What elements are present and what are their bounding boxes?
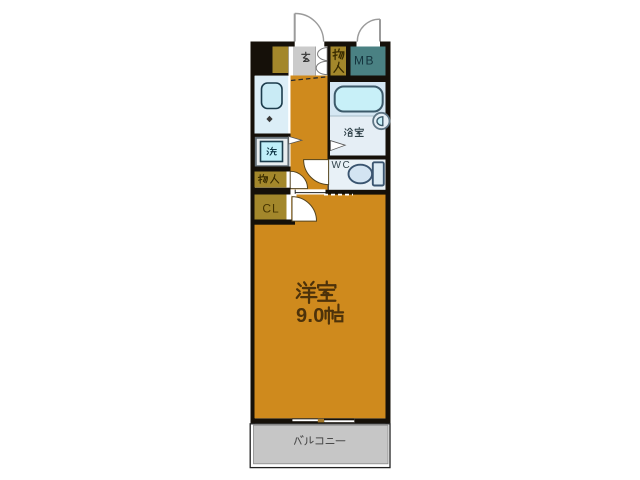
svg-text:WC: WC (332, 160, 352, 171)
svg-text:CL: CL (262, 202, 279, 216)
svg-text:MB: MB (354, 54, 375, 68)
svg-text:9.0: 9.0 (296, 305, 325, 327)
